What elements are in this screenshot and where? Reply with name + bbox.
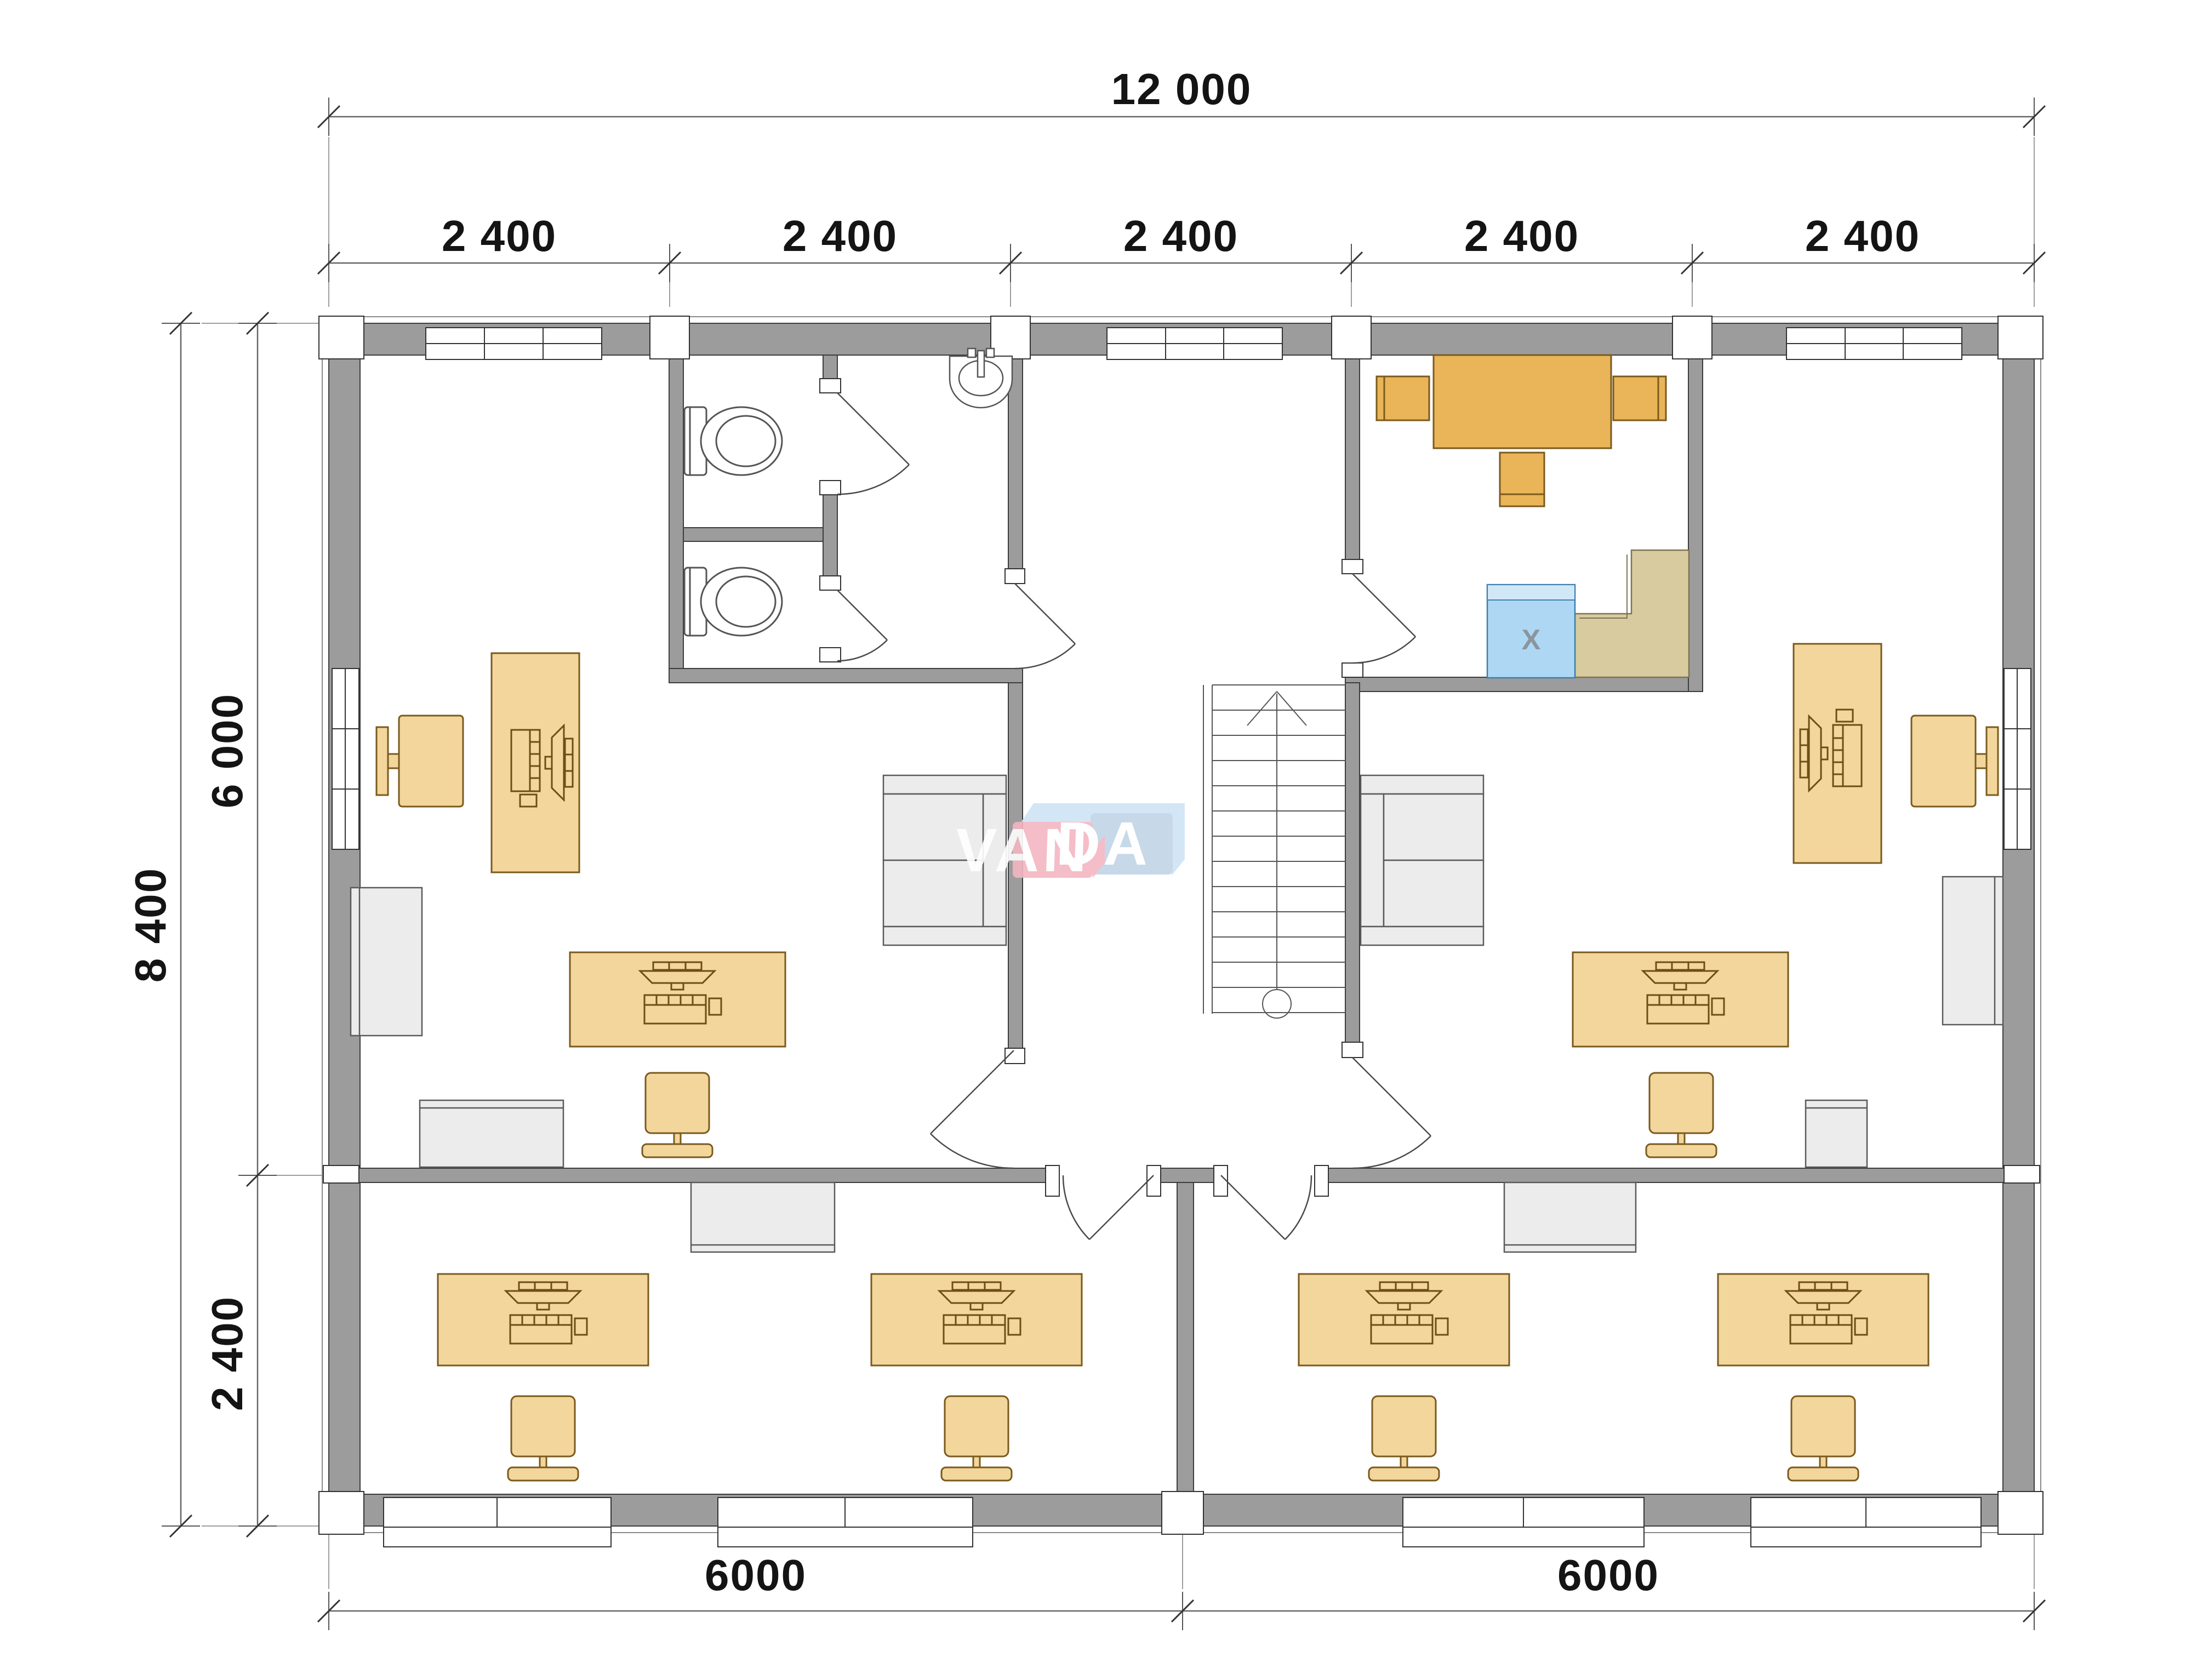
door-jamb (820, 576, 841, 590)
dim-lower-depth: 2 400 (203, 1296, 252, 1411)
desk-workstation (1718, 1274, 1928, 1365)
dim-bay-2: 2 400 (783, 212, 898, 260)
dim-bottom-left: 6000 (705, 1551, 807, 1599)
appliance-x-mark: X (1522, 624, 1541, 656)
office-chair (1369, 1396, 1439, 1481)
door-jamb (1005, 569, 1025, 584)
window-top-2 (1107, 328, 1282, 359)
cabinet (691, 1182, 835, 1252)
desk-workstation (492, 653, 579, 872)
desk-workstation (1299, 1274, 1509, 1365)
wall-stall-front-a (823, 355, 837, 379)
floor-plan-svg: 12 000 2 400 2 400 2 400 2 400 2 400 8 4… (0, 0, 2192, 1680)
dim-bay-1: 2 400 (442, 212, 557, 260)
office-chair (642, 1073, 712, 1157)
office-chair (508, 1396, 578, 1481)
desk-workstation (871, 1274, 1082, 1365)
toilet-icon (684, 407, 782, 475)
sofa (1361, 775, 1483, 945)
wall-junction (323, 1165, 359, 1183)
desk-workstation (1573, 952, 1788, 1047)
wall-wc-bottom (669, 668, 1023, 683)
wall-bottom-rooms-divider (1177, 1182, 1194, 1494)
door-washroom (1015, 584, 1075, 668)
conference-chair-right (1613, 376, 1666, 420)
wall-divider-center (1161, 1168, 1214, 1182)
toilet-icon (684, 568, 782, 636)
door-jamb (1315, 1165, 1328, 1196)
conference-set (1377, 355, 1666, 506)
door-jamb (1342, 1042, 1363, 1058)
dim-overall-width: 12 000 (1111, 65, 1252, 113)
window-bottom-3 (1403, 1498, 1644, 1547)
cabinet (1504, 1182, 1636, 1252)
wall-stall-divider (683, 528, 823, 541)
column (1332, 316, 1371, 359)
door-bottom-left-room (1063, 1175, 1154, 1239)
wall-kitchen-bottom (1345, 677, 1703, 692)
dishwasher-appliance: X (1487, 585, 1575, 678)
cabinet (351, 888, 422, 1036)
dim-overall-depth: 8 400 (126, 867, 175, 982)
stair-up-arrow (1247, 692, 1277, 725)
door-jamb (1342, 663, 1363, 677)
column (1672, 316, 1712, 359)
office-chair (941, 1396, 1012, 1481)
conference-table (1434, 355, 1611, 448)
dim-bay-3: 2 400 (1123, 212, 1238, 260)
column (1162, 1492, 1203, 1534)
door-stall-1 (837, 393, 909, 494)
door-jamb (1342, 559, 1363, 574)
sink-icon (950, 348, 1012, 408)
window-right (2004, 668, 2031, 849)
window-bottom-1 (384, 1498, 611, 1547)
window-bottom-2 (718, 1498, 973, 1547)
stair-up-arrow (1277, 692, 1306, 725)
wall-stall-front-b (823, 495, 837, 576)
office-side-chair (1911, 716, 1998, 807)
wall-junction (2004, 1165, 2040, 1183)
office-side-chair (376, 716, 463, 807)
door-jamb (1046, 1165, 1059, 1196)
office-chair (1646, 1073, 1716, 1157)
kitchen-area: X (1377, 355, 1689, 678)
bathroom-fixtures (684, 348, 1012, 636)
desk-workstation (438, 1274, 648, 1365)
column (319, 316, 364, 359)
conference-chair-left (1377, 376, 1429, 420)
window-top-1 (426, 328, 602, 359)
door-jamb (820, 648, 841, 662)
wall-kitchen-right (1688, 355, 1703, 692)
wall-stair-right (1345, 683, 1360, 1042)
staircase (1203, 685, 1345, 1018)
wall-divider-left (359, 1168, 1046, 1182)
cabinet (1806, 1100, 1867, 1167)
door-stall-2 (837, 590, 887, 661)
door-jamb (820, 379, 841, 393)
column (650, 316, 689, 359)
vanda-watermark: VAN DA (955, 803, 1185, 884)
window-bottom-4 (1751, 1498, 1981, 1547)
dim-bay-4: 2 400 (1464, 212, 1579, 260)
door-jamb (820, 481, 841, 495)
stair-start-marker (1263, 990, 1291, 1018)
wall-kitchen-left (1345, 355, 1360, 559)
kitchen-counter (1575, 550, 1689, 677)
floor-plan-sheet: 12 000 2 400 2 400 2 400 2 400 2 400 8 4… (0, 0, 2192, 1680)
wall-right (2003, 323, 2034, 1526)
door-left-room (931, 1050, 1014, 1168)
door-bottom-right-room (1221, 1175, 1311, 1239)
window-top-3 (1786, 328, 1962, 359)
desk-workstation (1794, 644, 1881, 863)
window-left (332, 668, 359, 849)
wall-divider-right (1328, 1168, 2004, 1182)
conference-chair-bottom (1500, 453, 1544, 506)
cabinet (420, 1100, 563, 1167)
column (1998, 316, 2043, 359)
door-kitchen (1352, 574, 1415, 663)
office-chair (1788, 1396, 1858, 1481)
column (991, 316, 1030, 359)
dim-bay-5: 2 400 (1805, 212, 1920, 260)
dim-upper-depth: 6 000 (203, 693, 252, 808)
watermark-text-da: DA (1055, 809, 1152, 878)
kitchen-counter-edge (1579, 555, 1627, 618)
column (1998, 1492, 2043, 1534)
cabinet (1943, 877, 2003, 1025)
door-right-room (1352, 1058, 1431, 1168)
desk-workstation (570, 952, 785, 1047)
column (319, 1492, 364, 1534)
wall-wc-left (669, 355, 683, 668)
dim-bottom-right: 6000 (1557, 1551, 1659, 1599)
